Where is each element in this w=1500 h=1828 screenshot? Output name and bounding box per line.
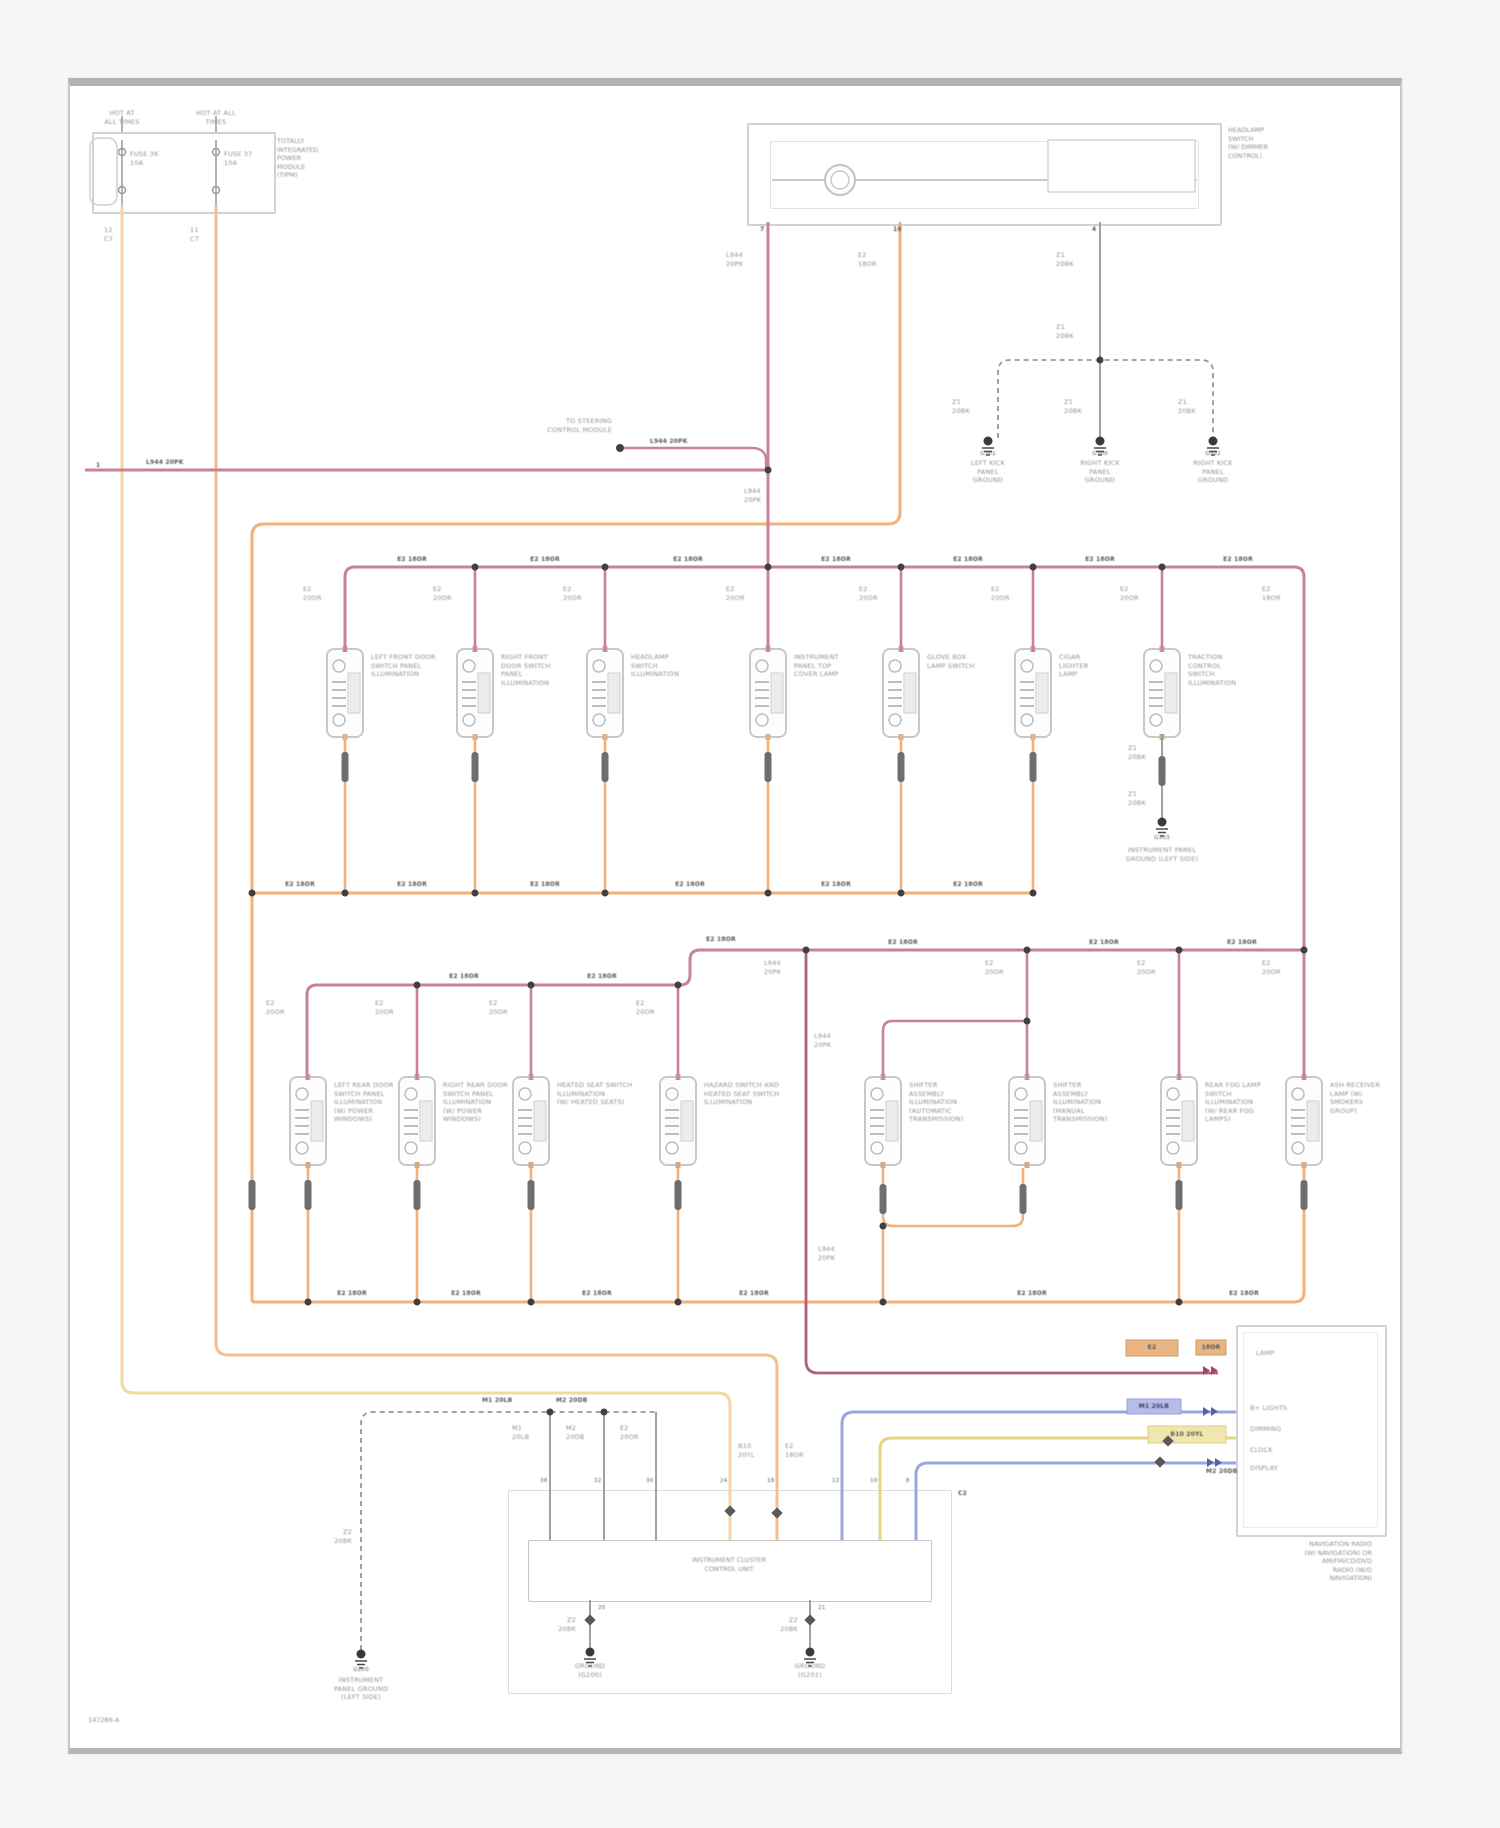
wire-label: Z2 20BK — [558, 1616, 576, 1633]
wire-label: E2 20OR — [1137, 959, 1156, 976]
wire-label: E2 20OR — [303, 585, 322, 602]
wire-label: Z1 20BK — [1056, 323, 1074, 340]
wire-label: 1 — [96, 462, 100, 471]
wire-label: 20 — [598, 1604, 605, 1613]
wire-label: HEADLAMP SWITCH ILLUMINATION — [631, 653, 679, 679]
wire-label: 21 — [818, 1604, 825, 1613]
wire-label: E2 18OR — [337, 1290, 367, 1299]
wire-label: Z1 20BK — [1064, 398, 1082, 415]
wire-label: REAR FOG LAMP SWITCH ILLUMINATION (W/ RE… — [1205, 1081, 1261, 1124]
wire-label: 38 — [540, 1477, 547, 1486]
wire-label: E2 18OR — [397, 881, 427, 890]
wiring-diagram-page: TOTALLY INTEGRATED POWER MODULE (TIPM) H… — [0, 0, 1500, 1828]
wire-label: LEFT KICK PANEL GROUND — [971, 459, 1005, 485]
wire-label: 11 C7 — [190, 226, 199, 243]
footer-code: 147286-A — [88, 1716, 119, 1725]
wire-label: E2 20OR — [266, 999, 285, 1016]
wire-label: E2 18OR — [785, 1442, 804, 1459]
wire-label: E2 18OR — [587, 973, 617, 982]
wire-label: GROUND (G200) — [575, 1662, 606, 1679]
wire-label: B+ LIGHTS — [1250, 1404, 1287, 1413]
wire-label: INSTRUMENT PANEL GROUND (LEFT SIDE) — [334, 1676, 388, 1702]
wire-label: E2 18OR — [821, 881, 851, 890]
wire-label: E2 20OR — [433, 585, 452, 602]
wire-label: E2 20OR — [563, 585, 582, 602]
wire-label: L944 20PK — [650, 438, 688, 447]
wire-label: G302 — [1205, 450, 1221, 459]
wire-label: E2 18OR — [675, 881, 705, 890]
wire-label: GLOVE BOX LAMP SWITCH — [927, 653, 975, 670]
wire-label: E2 20OR — [1120, 585, 1139, 602]
wire-label: 30 — [646, 1477, 653, 1486]
tipm-label: TOTALLY INTEGRATED POWER MODULE (TIPM) — [277, 137, 318, 180]
wire-label: M2 20DB — [566, 1424, 585, 1441]
wire-label: Z1 20BK — [1128, 744, 1146, 761]
wire-label: 32 — [594, 1477, 601, 1486]
wire-label: G300 — [1092, 450, 1108, 459]
wire-label: Z1 20BK — [1178, 398, 1196, 415]
wire-label: GROUND (G201) — [795, 1662, 826, 1679]
wire-label: E2 18OR — [673, 556, 703, 565]
wire-label: E2 18OR — [1085, 556, 1115, 565]
wire-label: L944 20PK — [764, 959, 781, 976]
wire-label: HAZARD SWITCH AND HEATED SEAT SWITCH ILL… — [704, 1081, 779, 1107]
wire-label: E2 18OR — [1262, 585, 1281, 602]
wire-label: 10 — [870, 1477, 877, 1486]
wire-label: TO STEERING CONTROL MODULE — [547, 417, 612, 434]
wire-label: G200 — [353, 1666, 369, 1675]
wire-label: M1 20LB — [482, 1397, 512, 1406]
wire-label: FUSE 36 10A — [130, 150, 158, 167]
wire-label: E2 18OR — [858, 251, 877, 268]
wire-label: E2 20OR — [489, 999, 508, 1016]
wire-label: E2 18OR — [285, 881, 315, 890]
wire-label: SHIFTER ASSEMBLY ILLUMINATION (AUTOMATIC… — [909, 1081, 963, 1124]
wire-label: CLOCK — [1250, 1446, 1273, 1455]
wire-label: E2 18OR — [1089, 939, 1119, 948]
wire-label: DIMMING — [1250, 1425, 1281, 1434]
wire-label: FUSE 37 10A — [224, 150, 252, 167]
wire-label: 18 — [767, 1477, 774, 1486]
wire-label: RIGHT KICK PANEL GROUND — [1080, 459, 1119, 485]
wire-label: M2 20DB — [556, 1397, 588, 1406]
wire-label: L944 20PK — [744, 487, 761, 504]
label-layer: TOTALLY INTEGRATED POWER MODULE (TIPM) H… — [0, 0, 1500, 1828]
wire-label: E2 18OR — [530, 881, 560, 890]
wire-label: HEATED SEAT SWITCH ILLUMINATION (W/ HEAT… — [557, 1081, 632, 1107]
wire-label: E2 20OR — [985, 959, 1004, 976]
wire-label: CIGAR LIGHTER LAMP — [1059, 653, 1088, 679]
wire-label: E2 18OR — [1227, 939, 1257, 948]
wire-label: E2 20OR — [726, 585, 745, 602]
wire-label: E2 20OR — [859, 585, 878, 602]
wire-label: L944 20PK — [146, 459, 184, 468]
wire-label: E2 20OR — [620, 1424, 639, 1441]
wire-label: SHIFTER ASSEMBLY ILLUMINATION (MANUAL TR… — [1053, 1081, 1107, 1124]
wire-label: M2 20DB — [1206, 1468, 1238, 1477]
wire-label: M1 20LB — [1139, 1403, 1169, 1412]
wire-label: DISPLAY — [1250, 1464, 1278, 1473]
wire-label: E2 20OR — [636, 999, 655, 1016]
wire-label: L944 20PK — [818, 1245, 835, 1262]
wire-label: E2 18OR — [530, 556, 560, 565]
wire-label: G303 — [1154, 834, 1170, 843]
wire-label: E2 18OR — [706, 936, 736, 945]
wire-label: 24 — [720, 1477, 727, 1486]
wire-label: TRACTION CONTROL SWITCH ILLUMINATION — [1188, 653, 1236, 687]
wire-label: Z2 20BK — [334, 1528, 352, 1545]
wire-label: LAMP — [1256, 1349, 1275, 1358]
wire-label: E2 — [1148, 1344, 1157, 1353]
wire-label: L944 20PK — [726, 251, 743, 268]
instrument-cluster-label: INSTRUMENT CLUSTER CONTROL UNIT — [692, 1556, 766, 1573]
wire-label: E2 18OR — [953, 556, 983, 565]
wire-label: INSTRUMENT PANEL TOP COVER LAMP — [794, 653, 839, 679]
wire-label: E2 20OR — [991, 585, 1010, 602]
headlamp-switch-label: HEADLAMP SWITCH (W/ DIMMER CONTROL) — [1228, 126, 1268, 160]
wire-label: E2 18OR — [449, 973, 479, 982]
wire-label: INSTRUMENT PANEL GROUND (LEFT SIDE) — [1126, 846, 1199, 863]
wire-label: E2 18OR — [1017, 1290, 1047, 1299]
wire-label: RIGHT FRONT DOOR SWITCH PANEL ILLUMINATI… — [501, 653, 551, 687]
wire-label: E2 18OR — [1223, 556, 1253, 565]
wire-label: 18OR — [1202, 1344, 1221, 1353]
wire-label: B10 20YL — [1170, 1431, 1203, 1440]
wire-label: RIGHT KICK PANEL GROUND — [1193, 459, 1232, 485]
wire-label: E2 20OR — [1262, 959, 1281, 976]
wire-label: E2 18OR — [397, 556, 427, 565]
wire-label: 12 C7 — [104, 226, 113, 243]
wire-label: E2 18OR — [739, 1290, 769, 1299]
wire-label: Z2 20BK — [780, 1616, 798, 1633]
wire-label: E2 20OR — [375, 999, 394, 1016]
wire-label: 4 — [1092, 226, 1096, 235]
wire-label: 8 — [906, 1477, 910, 1486]
wire-label: Z1 20BK — [1128, 790, 1146, 807]
wire-label: E2 18OR — [953, 881, 983, 890]
wire-label: B10 20YL — [738, 1442, 755, 1459]
wire-label: L944 20PK — [814, 1032, 831, 1049]
wire-label: LEFT FRONT DOOR SWITCH PANEL ILLUMINATIO… — [371, 653, 435, 679]
wire-label: RIGHT REAR DOOR SWITCH PANEL ILLUMINATIO… — [443, 1081, 508, 1124]
wire-label: C2 — [958, 1490, 967, 1499]
wire-label: ASH RECEIVER LAMP (W/ SMOKERS GROUP) — [1330, 1081, 1380, 1115]
wire-label: G301 — [980, 450, 996, 459]
radio-label: NAVIGATION RADIO (W/ NAVIGATION) OR AM/F… — [1304, 1540, 1372, 1583]
wire-label: Z1 20BK — [952, 398, 970, 415]
wire-label: E2 18OR — [821, 556, 851, 565]
wire-label: 7 — [760, 226, 764, 235]
wire-label: M1 20LB — [512, 1424, 529, 1441]
wire-label: E2 18OR — [1229, 1290, 1259, 1299]
wire-label: HOT AT ALL TIMES — [104, 109, 139, 126]
wire-label: E2 18OR — [451, 1290, 481, 1299]
wire-label: 10 — [893, 226, 902, 235]
wire-label: E2 18OR — [888, 939, 918, 948]
wire-label: 12 — [832, 1477, 839, 1486]
wire-label: LEFT REAR DOOR SWITCH PANEL ILLUMINATION… — [334, 1081, 394, 1124]
wire-label: E2 18OR — [582, 1290, 612, 1299]
wire-label: HOT AT ALL TIMES — [196, 109, 236, 126]
wire-label: Z1 20BK — [1056, 251, 1074, 268]
